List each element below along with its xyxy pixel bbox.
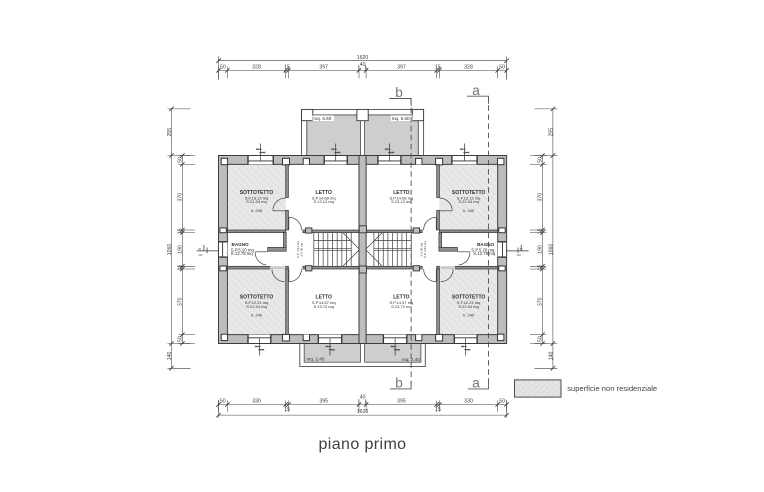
svg-text:b: b — [395, 85, 403, 100]
svg-text:50: 50 — [220, 64, 226, 70]
svg-text:120: 120 — [517, 253, 522, 257]
svg-text:240: 240 — [466, 348, 471, 352]
svg-text:50: 50 — [220, 399, 226, 405]
svg-text:370: 370 — [177, 297, 183, 306]
svg-text:370: 370 — [537, 297, 543, 306]
svg-text:240: 240 — [390, 151, 395, 155]
svg-text:330: 330 — [252, 399, 261, 405]
svg-text:S.0.00 mq: S.0.00 mq — [300, 242, 304, 256]
svg-text:255: 255 — [167, 128, 173, 137]
svg-text:240: 240 — [465, 151, 470, 155]
svg-text:S.P. 3.84 mq: S.P. 3.84 mq — [423, 241, 427, 258]
svg-text:328: 328 — [464, 64, 473, 70]
svg-text:240: 240 — [261, 151, 266, 155]
svg-text:mq. 6.60: mq. 6.60 — [392, 116, 410, 121]
svg-text:S.12.78 mq: S.12.78 mq — [473, 251, 496, 256]
svg-text:1620: 1620 — [357, 409, 369, 415]
svg-text:superficie non residenziale: superficie non residenziale — [567, 384, 657, 393]
svg-text:50: 50 — [177, 157, 183, 163]
svg-text:S.13.72 mq: S.13.72 mq — [313, 304, 333, 309]
svg-text:240: 240 — [260, 348, 265, 352]
svg-text:15: 15 — [537, 265, 543, 271]
svg-text:255: 255 — [548, 128, 554, 137]
svg-text:S.13.12 mq: S.13.12 mq — [391, 199, 411, 204]
svg-text:50: 50 — [177, 336, 183, 342]
svg-text:330: 330 — [464, 399, 473, 405]
svg-text:395: 395 — [319, 399, 328, 405]
svg-text:370: 370 — [537, 193, 543, 202]
svg-text:a: a — [472, 83, 480, 98]
svg-text:397: 397 — [319, 64, 328, 70]
svg-text:a: a — [472, 376, 480, 391]
svg-text:1620: 1620 — [357, 55, 369, 61]
svg-text:140: 140 — [548, 351, 554, 360]
svg-text:h: 240: h: 240 — [251, 208, 263, 213]
svg-text:mq. 2.40: mq. 2.40 — [307, 356, 325, 361]
svg-text:1060: 1060 — [167, 244, 173, 256]
svg-text:240: 240 — [396, 348, 401, 352]
svg-text:S.13.72 mq: S.13.72 mq — [391, 304, 411, 309]
svg-text:S.21.04 mq: S.21.04 mq — [458, 199, 478, 204]
svg-text:15: 15 — [284, 64, 290, 70]
svg-text:370: 370 — [177, 193, 183, 202]
svg-text:395: 395 — [397, 399, 406, 405]
svg-text:40: 40 — [360, 394, 366, 400]
svg-text:S.0.00 mq: S.0.00 mq — [419, 242, 423, 256]
svg-text:240: 240 — [331, 348, 336, 352]
svg-text:328: 328 — [252, 64, 261, 70]
svg-text:15: 15 — [435, 407, 441, 413]
svg-text:piano primo: piano primo — [318, 436, 406, 453]
svg-text:S.21.04 mq: S.21.04 mq — [246, 199, 266, 204]
svg-text:15: 15 — [435, 64, 441, 70]
svg-text:190: 190 — [177, 245, 183, 254]
svg-text:h: 240: h: 240 — [463, 208, 475, 213]
svg-text:50: 50 — [499, 399, 505, 405]
svg-text:140: 140 — [167, 351, 173, 360]
svg-text:240: 240 — [336, 151, 341, 155]
svg-text:h: 240: h: 240 — [463, 313, 475, 318]
svg-text:15: 15 — [537, 228, 543, 234]
svg-text:S.13.12 mq: S.13.12 mq — [313, 199, 333, 204]
svg-text:15: 15 — [284, 407, 290, 413]
svg-text:50: 50 — [537, 157, 543, 163]
svg-text:1060: 1060 — [548, 244, 554, 256]
svg-text:120: 120 — [198, 253, 203, 257]
svg-text:40: 40 — [360, 62, 366, 68]
svg-text:mq. 6.60: mq. 6.60 — [313, 116, 331, 121]
svg-text:50: 50 — [537, 336, 543, 342]
svg-text:397: 397 — [397, 64, 406, 70]
svg-text:S.12.78 mq: S.12.78 mq — [231, 251, 254, 256]
svg-text:190: 190 — [537, 245, 543, 254]
svg-text:S.21.04 mq: S.21.04 mq — [246, 304, 266, 309]
svg-text:15: 15 — [177, 265, 183, 271]
svg-text:b: b — [395, 376, 403, 391]
svg-text:S.21.04 mq: S.21.04 mq — [458, 304, 478, 309]
svg-text:50: 50 — [499, 64, 505, 70]
svg-text:15: 15 — [177, 228, 183, 234]
svg-text:h: 240: h: 240 — [251, 313, 263, 318]
